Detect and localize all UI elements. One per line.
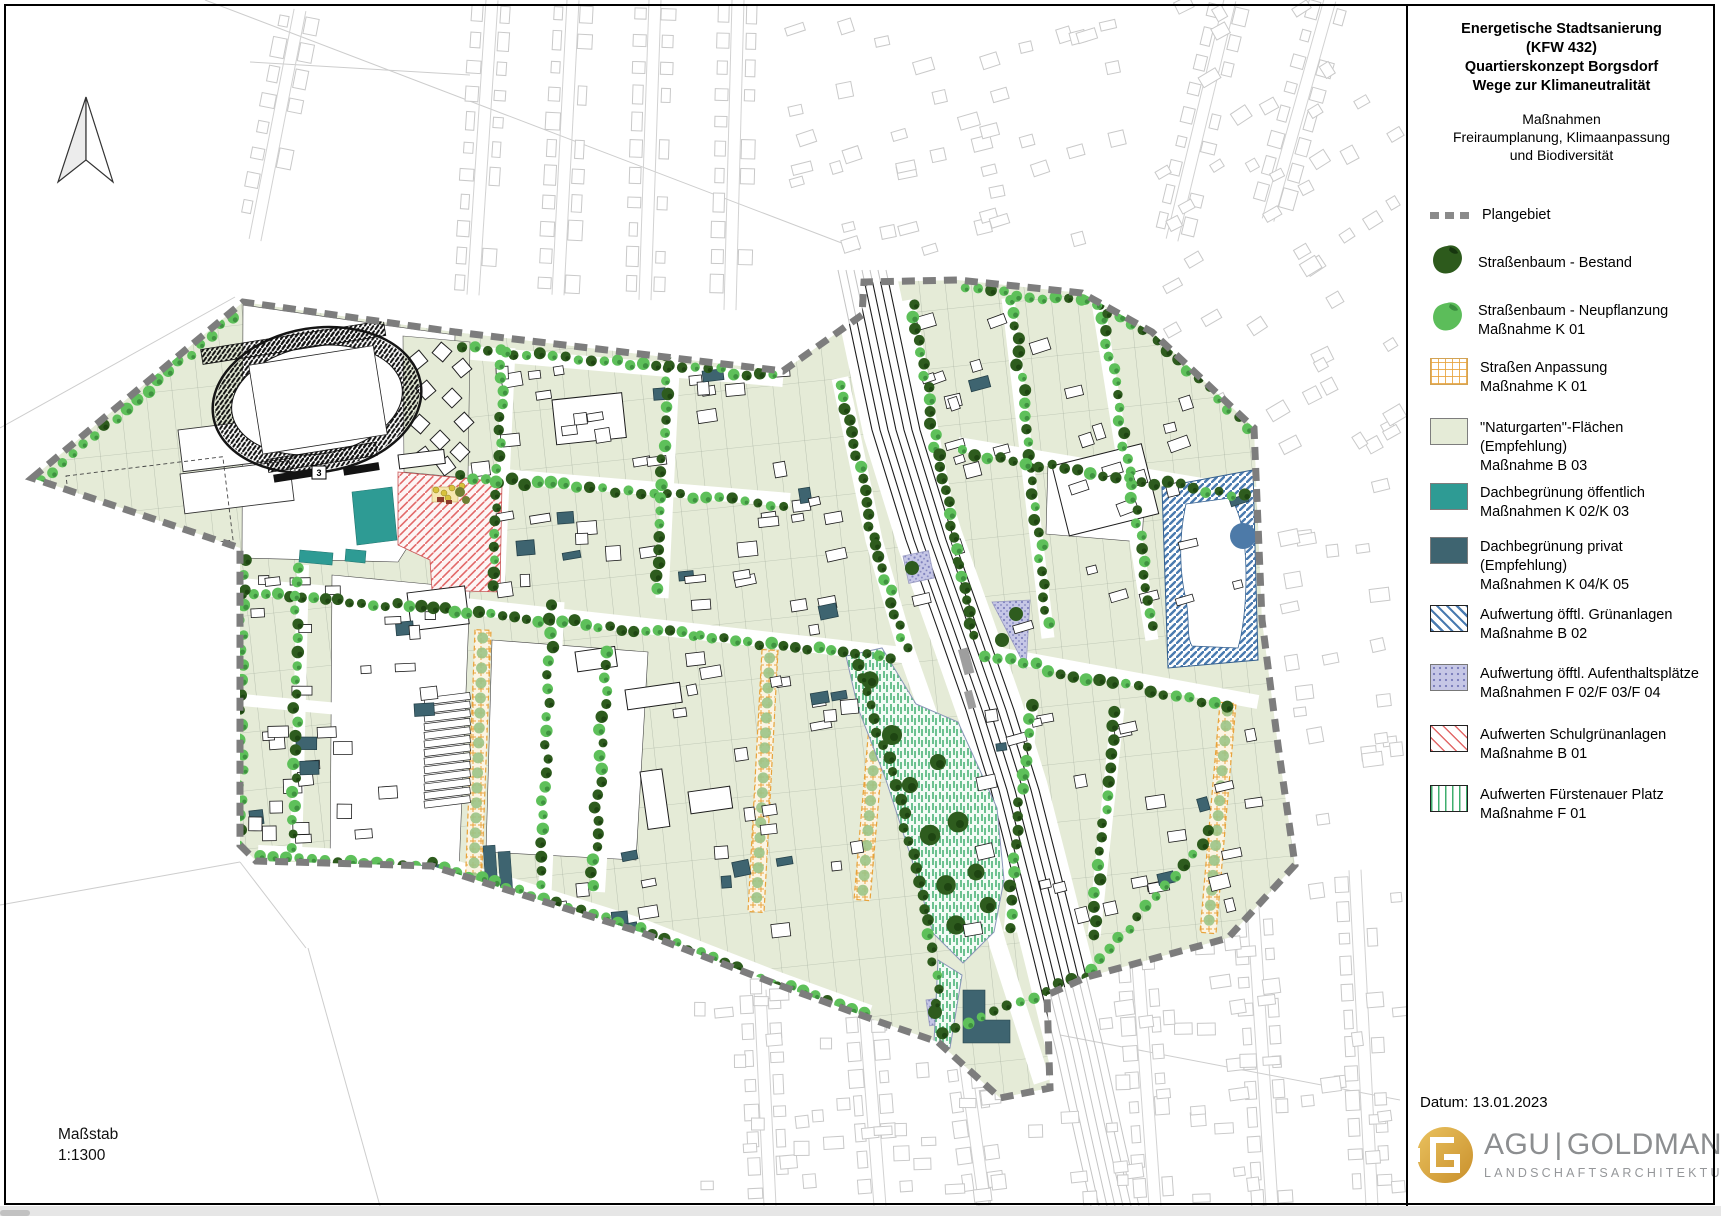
fuerstenauer-swatch [1430,785,1468,812]
legend-item-dach-oeff: Dachbegrünung öffentlichMaßnahmen K 02/K… [1430,483,1645,522]
legend-item-baum-bestand: Straßenbaum - Bestand [1430,244,1632,281]
plangebiet-swatch [1430,212,1470,219]
legend-item-label: "Naturgarten"-Flächen(Empfehlung)Maßnahm… [1480,418,1623,476]
title-line: Wege zur Klimaneutralität [1408,77,1715,96]
legend-item-label: Aufwertung öfftl. GrünanlagenMaßnahme B … [1480,605,1672,644]
scale-label: Maßstab [58,1124,118,1145]
title-line: Quartierskonzept Borgsdorf [1408,58,1715,77]
legend-item-fuerstenauer: Aufwerten Fürstenauer PlatzMaßnahme F 01 [1430,785,1664,824]
legend-item-label: Aufwertung öfftl. AufenthaltsplätzeMaßna… [1480,664,1699,703]
subtitle-line: Maßnahmen [1408,110,1715,128]
legend-item-aufenthalt: Aufwertung öfftl. AufenthaltsplätzeMaßna… [1430,664,1699,703]
legend-item-label: Straßenbaum - Bestand [1478,253,1632,273]
baum-bestand-swatch [1430,244,1466,281]
logo: AGU|GOLDMANN LANDSCHAFTSARCHITEKTUR [1414,1122,1714,1202]
legend-item-label: Straßen AnpassungMaßnahme K 01 [1480,358,1607,397]
legend-item-label: Dachbegrünung privat(Empfehlung)Maßnahme… [1480,537,1629,595]
title-line: (KFW 432) [1408,39,1715,58]
legend-item-plangebiet: Plangebiet [1430,205,1551,225]
plan-sheet: 3 Maßstab 1:1300 Energetische Stadtsanie… [0,0,1721,1206]
title-line: Energetische Stadtsanierung [1408,20,1715,39]
legend-item-label: Aufwerten Fürstenauer PlatzMaßnahme F 01 [1480,785,1664,824]
schul-swatch [1430,725,1468,752]
subtitle-line: Freiraumplanung, Klimaanpassung [1408,128,1715,146]
legend-item-label: Plangebiet [1482,205,1551,225]
dach-priv-swatch [1430,537,1468,564]
baum-neu-swatch [1430,301,1466,338]
legend-item-label: Dachbegrünung öffentlichMaßnahmen K 02/K… [1480,483,1645,522]
legend-item-baum-neu: Straßenbaum - NeupflanzungMaßnahme K 01 [1430,301,1668,340]
legend-item-naturgarten: "Naturgarten"-Flächen(Empfehlung)Maßnahm… [1430,418,1623,476]
logo-text: AGU|GOLDMANN LANDSCHAFTSARCHITEKTUR [1484,1128,1720,1180]
legend-item-label: Aufwerten SchulgrünanlagenMaßnahme B 01 [1480,725,1666,764]
logo-wordmark: AGU|GOLDMANN [1484,1128,1720,1162]
scale-box: Maßstab 1:1300 [58,1124,118,1166]
gruenanlagen-swatch [1430,605,1468,632]
legend-item-dach-priv: Dachbegrünung privat(Empfehlung)Maßnahme… [1430,537,1629,595]
legend-item-schul: Aufwerten SchulgrünanlagenMaßnahme B 01 [1430,725,1666,764]
aufenthalt-swatch [1430,664,1468,691]
date-label: Datum: 13.01.2023 [1420,1094,1548,1111]
logo-icon [1414,1124,1476,1186]
title-block: Energetische Stadtsanierung (KFW 432) Qu… [1408,20,1715,96]
logo-subtitle: LANDSCHAFTSARCHITEKTUR [1484,1166,1720,1180]
svg-text:3: 3 [316,468,321,478]
anpassung-swatch [1430,358,1468,385]
legend-item-gruenanlagen: Aufwertung öfftl. GrünanlagenMaßnahme B … [1430,605,1672,644]
subtitle-block: Maßnahmen Freiraumplanung, Klimaanpassun… [1408,110,1715,164]
legend-item-label: Straßenbaum - NeupflanzungMaßnahme K 01 [1478,301,1668,340]
dach-oeff-swatch [1430,483,1468,510]
viewer-background-strip [0,1206,1721,1216]
legend-item-anpassung: Straßen AnpassungMaßnahme K 01 [1430,358,1607,397]
legend-panel: Energetische Stadtsanierung (KFW 432) Qu… [1406,6,1715,1206]
scrollbar-nub[interactable] [0,1210,30,1216]
scale-value: 1:1300 [58,1145,118,1166]
naturgarten-swatch [1430,418,1468,445]
subtitle-line: und Biodiversität [1408,146,1715,164]
